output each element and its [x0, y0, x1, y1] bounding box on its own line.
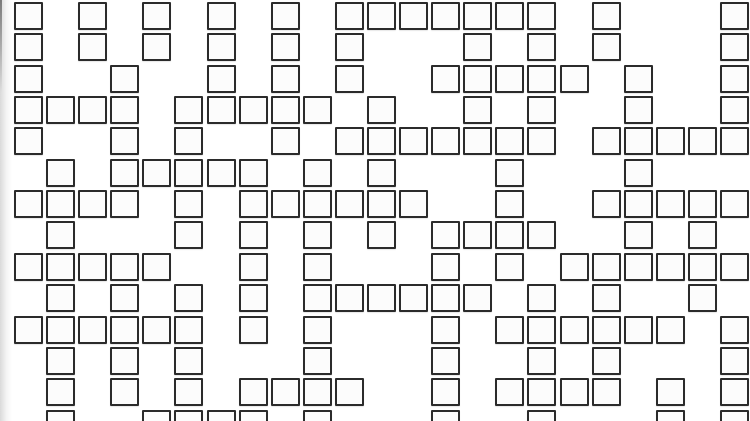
- grid-cell[interactable]: [239, 410, 268, 421]
- grid-cell[interactable]: [495, 65, 524, 93]
- grid-cell[interactable]: [527, 316, 556, 344]
- grid-cell[interactable]: [78, 190, 107, 218]
- grid-cell[interactable]: [174, 316, 203, 344]
- puzzle-grid-viewport: [0, 0, 750, 421]
- grid-cell[interactable]: [207, 2, 236, 30]
- grid-cell[interactable]: [463, 221, 492, 249]
- grid-cell[interactable]: [303, 316, 332, 344]
- grid-cell[interactable]: [624, 316, 653, 344]
- grid-cell[interactable]: [46, 378, 75, 406]
- grid-cell[interactable]: [142, 2, 171, 30]
- grid-cell[interactable]: [527, 127, 556, 155]
- grid-cell[interactable]: [335, 378, 364, 406]
- grid-cell[interactable]: [399, 127, 428, 155]
- grid-cell[interactable]: [720, 410, 749, 421]
- grid-cell[interactable]: [624, 65, 653, 93]
- grid-cell[interactable]: [463, 127, 492, 155]
- grid-cell[interactable]: [110, 347, 139, 375]
- grid-cell[interactable]: [592, 253, 621, 281]
- grid-cell[interactable]: [46, 159, 75, 187]
- grid-cell[interactable]: [239, 159, 268, 187]
- grid-cell[interactable]: [688, 253, 717, 281]
- grid-cell[interactable]: [688, 284, 717, 312]
- grid-cell[interactable]: [303, 378, 332, 406]
- grid-cell[interactable]: [527, 284, 556, 312]
- grid-cell[interactable]: [560, 65, 589, 93]
- grid-cell[interactable]: [367, 221, 396, 249]
- grid-cell[interactable]: [174, 127, 203, 155]
- grid-cell[interactable]: [174, 410, 203, 421]
- grid-cell[interactable]: [399, 284, 428, 312]
- grid-cell[interactable]: [624, 253, 653, 281]
- grid-cell[interactable]: [174, 378, 203, 406]
- grid-cell[interactable]: [463, 284, 492, 312]
- grid-cell[interactable]: [367, 127, 396, 155]
- grid-cell[interactable]: [656, 253, 685, 281]
- grid-cell[interactable]: [527, 347, 556, 375]
- grid-cell[interactable]: [688, 127, 717, 155]
- grid-cell[interactable]: [592, 33, 621, 61]
- grid-cell[interactable]: [367, 96, 396, 124]
- grid-cell[interactable]: [14, 127, 43, 155]
- grid-cell[interactable]: [174, 221, 203, 249]
- grid-cell[interactable]: [720, 347, 749, 375]
- grid-cell[interactable]: [46, 284, 75, 312]
- grid-cell[interactable]: [335, 65, 364, 93]
- grid-cell[interactable]: [592, 347, 621, 375]
- grid-cell[interactable]: [78, 253, 107, 281]
- grid-cell[interactable]: [431, 378, 460, 406]
- left-edge-line: [0, 0, 2, 92]
- grid-cell[interactable]: [431, 253, 460, 281]
- grid-cell[interactable]: [207, 96, 236, 124]
- grid-cell[interactable]: [271, 33, 300, 61]
- grid-cell[interactable]: [303, 410, 332, 421]
- grid-cell[interactable]: [174, 347, 203, 375]
- grid-cell[interactable]: [495, 159, 524, 187]
- grid-cell[interactable]: [720, 378, 749, 406]
- grid-cell[interactable]: [688, 190, 717, 218]
- grid-cell[interactable]: [78, 316, 107, 344]
- grid-cell[interactable]: [14, 96, 43, 124]
- grid-cell[interactable]: [527, 96, 556, 124]
- grid-cell[interactable]: [174, 96, 203, 124]
- grid-cell[interactable]: [239, 96, 268, 124]
- grid-cell[interactable]: [527, 2, 556, 30]
- grid-cell[interactable]: [592, 2, 621, 30]
- grid-cell[interactable]: [207, 33, 236, 61]
- grid-cell[interactable]: [46, 410, 75, 421]
- grid-cell[interactable]: [527, 33, 556, 61]
- grid-cell[interactable]: [367, 159, 396, 187]
- grid-cell[interactable]: [303, 253, 332, 281]
- grid-cell[interactable]: [207, 410, 236, 421]
- grid-cell[interactable]: [303, 347, 332, 375]
- grid-cell[interactable]: [624, 159, 653, 187]
- grid-cell[interactable]: [303, 221, 332, 249]
- grid-cell[interactable]: [174, 159, 203, 187]
- grid-cell[interactable]: [720, 253, 749, 281]
- grid-cell[interactable]: [239, 190, 268, 218]
- grid-cell[interactable]: [624, 127, 653, 155]
- grid-cell[interactable]: [142, 316, 171, 344]
- grid-cell[interactable]: [431, 221, 460, 249]
- grid-cell[interactable]: [656, 316, 685, 344]
- grid-cell[interactable]: [560, 253, 589, 281]
- grid-cell[interactable]: [592, 378, 621, 406]
- grid-cell[interactable]: [495, 2, 524, 30]
- grid-cell[interactable]: [592, 284, 621, 312]
- grid-cell[interactable]: [720, 33, 749, 61]
- grid-cell[interactable]: [14, 253, 43, 281]
- grid-cell[interactable]: [174, 190, 203, 218]
- grid-cell[interactable]: [207, 159, 236, 187]
- grid-cell[interactable]: [14, 2, 43, 30]
- grid-cell[interactable]: [303, 96, 332, 124]
- grid-cell[interactable]: [110, 253, 139, 281]
- grid-cell[interactable]: [239, 284, 268, 312]
- grid-cell[interactable]: [688, 221, 717, 249]
- grid-cell[interactable]: [239, 221, 268, 249]
- grid-cell[interactable]: [110, 159, 139, 187]
- grid-cell[interactable]: [239, 316, 268, 344]
- grid-cell[interactable]: [46, 221, 75, 249]
- grid-cell[interactable]: [367, 190, 396, 218]
- grid-cell[interactable]: [14, 316, 43, 344]
- grid-cell[interactable]: [239, 253, 268, 281]
- grid-cell[interactable]: [239, 378, 268, 406]
- grid-cell[interactable]: [720, 96, 749, 124]
- grid-cell[interactable]: [14, 190, 43, 218]
- grid-cell[interactable]: [495, 221, 524, 249]
- grid-cell[interactable]: [592, 127, 621, 155]
- grid-cell[interactable]: [335, 33, 364, 61]
- left-edge-shadow: [0, 0, 14, 421]
- grid-cell[interactable]: [14, 33, 43, 61]
- grid-cell[interactable]: [142, 159, 171, 187]
- grid-cell[interactable]: [527, 221, 556, 249]
- grid-cell[interactable]: [527, 65, 556, 93]
- grid-cell[interactable]: [303, 190, 332, 218]
- grid-cell[interactable]: [367, 284, 396, 312]
- grid-cell[interactable]: [656, 378, 685, 406]
- grid-cell[interactable]: [656, 190, 685, 218]
- grid-cell[interactable]: [624, 221, 653, 249]
- grid-cell[interactable]: [463, 96, 492, 124]
- grid-cell[interactable]: [142, 410, 171, 421]
- grid-cell[interactable]: [46, 96, 75, 124]
- grid-cell[interactable]: [142, 33, 171, 61]
- grid-cell[interactable]: [560, 316, 589, 344]
- grid-cell[interactable]: [271, 2, 300, 30]
- grid-cell[interactable]: [495, 253, 524, 281]
- grid-cell[interactable]: [624, 96, 653, 124]
- grid-cell[interactable]: [110, 65, 139, 93]
- grid-cell[interactable]: [431, 284, 460, 312]
- grid-cell[interactable]: [399, 2, 428, 30]
- grid-cell[interactable]: [431, 127, 460, 155]
- grid-cell[interactable]: [463, 33, 492, 61]
- grid-cell[interactable]: [431, 410, 460, 421]
- grid-cell[interactable]: [495, 316, 524, 344]
- grid-cell[interactable]: [720, 2, 749, 30]
- grid-cell[interactable]: [142, 253, 171, 281]
- grid-cell[interactable]: [527, 410, 556, 421]
- grid-cell[interactable]: [78, 33, 107, 61]
- grid-cell[interactable]: [110, 96, 139, 124]
- grid-cell[interactable]: [495, 378, 524, 406]
- grid-cell[interactable]: [335, 2, 364, 30]
- grid-cell[interactable]: [46, 190, 75, 218]
- grid-cell[interactable]: [78, 2, 107, 30]
- grid-cell[interactable]: [271, 190, 300, 218]
- grid-cell[interactable]: [335, 190, 364, 218]
- grid-cell[interactable]: [46, 316, 75, 344]
- grid-cell[interactable]: [720, 127, 749, 155]
- grid-cell[interactable]: [271, 96, 300, 124]
- grid-cell[interactable]: [656, 127, 685, 155]
- grid-cell[interactable]: [431, 347, 460, 375]
- grid-cell[interactable]: [367, 2, 396, 30]
- grid-cell[interactable]: [110, 127, 139, 155]
- grid-cell[interactable]: [335, 127, 364, 155]
- grid-cell[interactable]: [110, 316, 139, 344]
- grid-cell[interactable]: [463, 2, 492, 30]
- grid-cell[interactable]: [110, 378, 139, 406]
- grid-cell[interactable]: [656, 410, 685, 421]
- grid-cell[interactable]: [495, 190, 524, 218]
- grid-cell[interactable]: [110, 284, 139, 312]
- grid-cell[interactable]: [560, 378, 589, 406]
- grid-cell[interactable]: [271, 127, 300, 155]
- grid-cell[interactable]: [720, 190, 749, 218]
- grid-cell[interactable]: [207, 65, 236, 93]
- grid-cell[interactable]: [431, 65, 460, 93]
- grid-cell[interactable]: [78, 96, 107, 124]
- grid-cell[interactable]: [335, 284, 364, 312]
- grid-cell[interactable]: [174, 284, 203, 312]
- grid-cell[interactable]: [527, 378, 556, 406]
- grid-cell[interactable]: [399, 190, 428, 218]
- grid-cell[interactable]: [592, 316, 621, 344]
- grid-cell[interactable]: [303, 284, 332, 312]
- grid-cell[interactable]: [46, 253, 75, 281]
- grid-cell[interactable]: [624, 190, 653, 218]
- grid-cell[interactable]: [303, 159, 332, 187]
- grid-cell[interactable]: [592, 190, 621, 218]
- grid-cell[interactable]: [46, 347, 75, 375]
- grid-cell[interactable]: [720, 316, 749, 344]
- grid-cell[interactable]: [720, 65, 749, 93]
- grid-cell[interactable]: [14, 65, 43, 93]
- grid-cell[interactable]: [431, 2, 460, 30]
- grid-cell[interactable]: [431, 316, 460, 344]
- grid-cell[interactable]: [463, 65, 492, 93]
- grid-cell[interactable]: [271, 378, 300, 406]
- grid-cell[interactable]: [271, 65, 300, 93]
- grid-cell[interactable]: [110, 190, 139, 218]
- grid-cell[interactable]: [495, 127, 524, 155]
